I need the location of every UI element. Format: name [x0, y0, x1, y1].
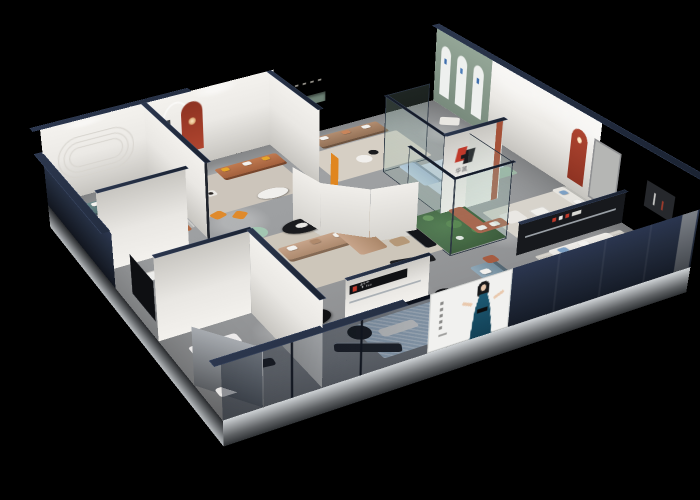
- isometric-world: 华凯 华凯: [48, 100, 690, 421]
- poster-woman-arm-left: [462, 302, 473, 306]
- relief-arc-wall-art: [56, 122, 135, 183]
- front-logo-characters: 华凯: [360, 281, 373, 290]
- arch-niche-2: [455, 53, 468, 109]
- showroom-render: 华凯 华凯: [0, 0, 700, 500]
- arch-niche-3: [471, 63, 485, 120]
- poster-woman-belt: [477, 306, 488, 313]
- poster-text-column: [438, 301, 443, 339]
- poster-woman-arm-right: [493, 290, 504, 300]
- white-armchair: [439, 117, 460, 126]
- arch-niche-1: [439, 44, 451, 100]
- brand-logo-h-red-block: [455, 146, 468, 163]
- red-arch-niche-right-wall: [567, 125, 589, 187]
- poster-woman-face: [481, 284, 487, 292]
